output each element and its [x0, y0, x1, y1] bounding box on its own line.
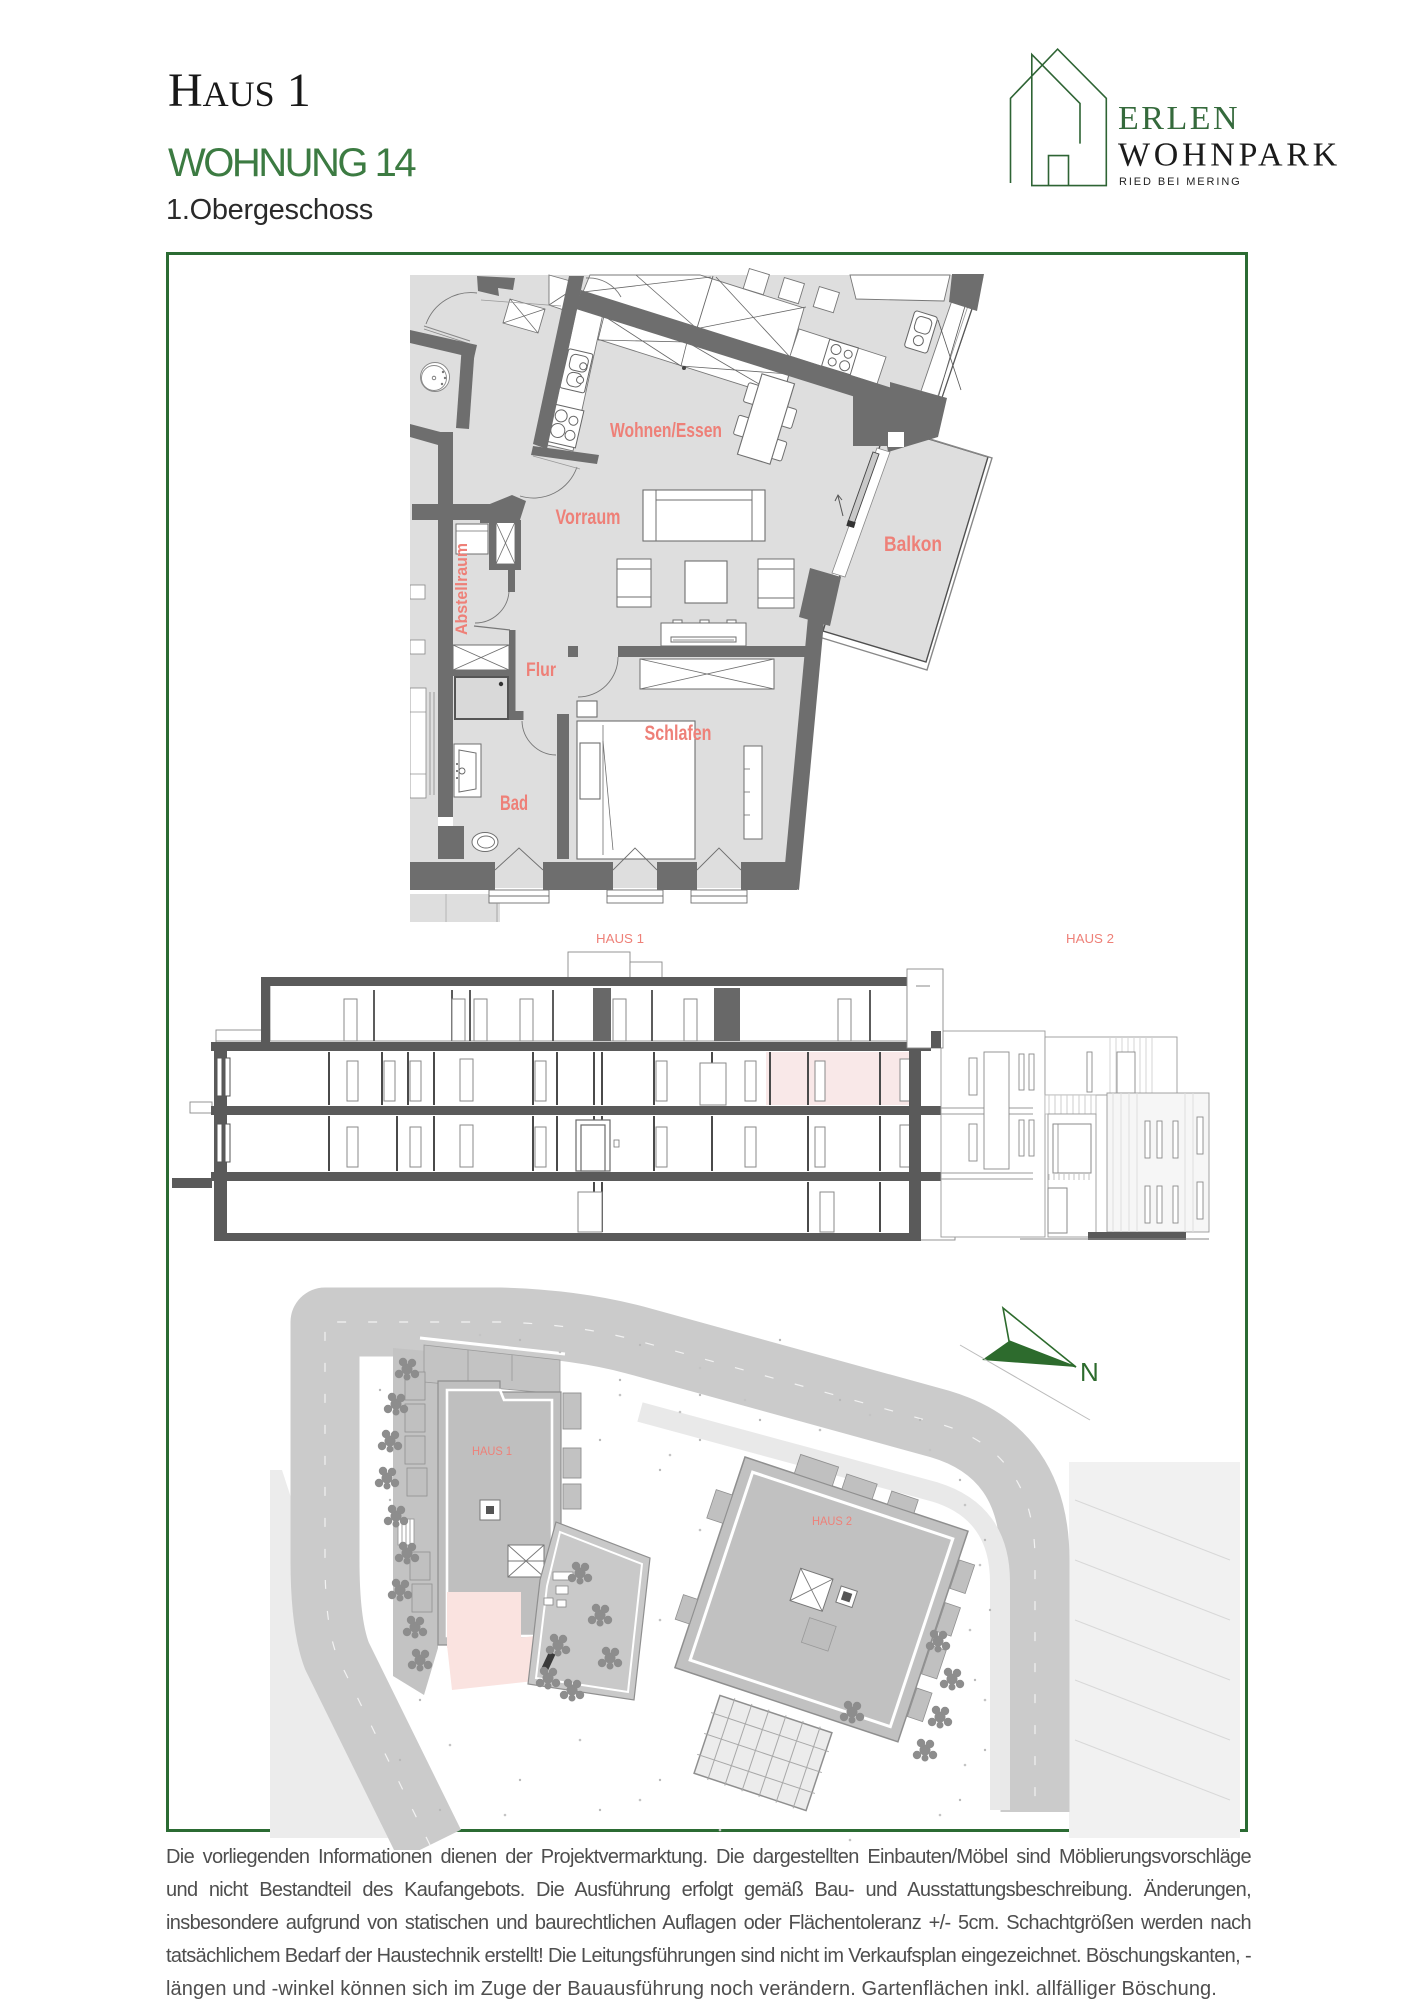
svg-text:Balkon: Balkon — [884, 533, 942, 556]
svg-text:HAUS 1: HAUS 1 — [472, 1444, 512, 1458]
svg-text:ERLEN: ERLEN — [1118, 100, 1240, 137]
svg-text:Wohnen/Essen: Wohnen/Essen — [610, 419, 722, 442]
svg-text:HAUS 2: HAUS 2 — [812, 1514, 852, 1528]
svg-text:WOHNPARK: WOHNPARK — [1118, 137, 1341, 174]
svg-text:Schlafen: Schlafen — [645, 722, 712, 745]
svg-text:Bad: Bad — [500, 792, 528, 815]
svg-text:Abstellraum: Abstellraum — [452, 543, 471, 635]
svg-text:RIED BEI MERING: RIED BEI MERING — [1119, 176, 1242, 188]
svg-text:Flur: Flur — [526, 660, 557, 681]
svg-text:N: N — [1080, 1357, 1099, 1387]
svg-text:Vorraum: Vorraum — [556, 506, 621, 529]
svg-text:HAUS 2: HAUS 2 — [1066, 931, 1114, 946]
svg-text:HAUS 1: HAUS 1 — [596, 931, 644, 946]
